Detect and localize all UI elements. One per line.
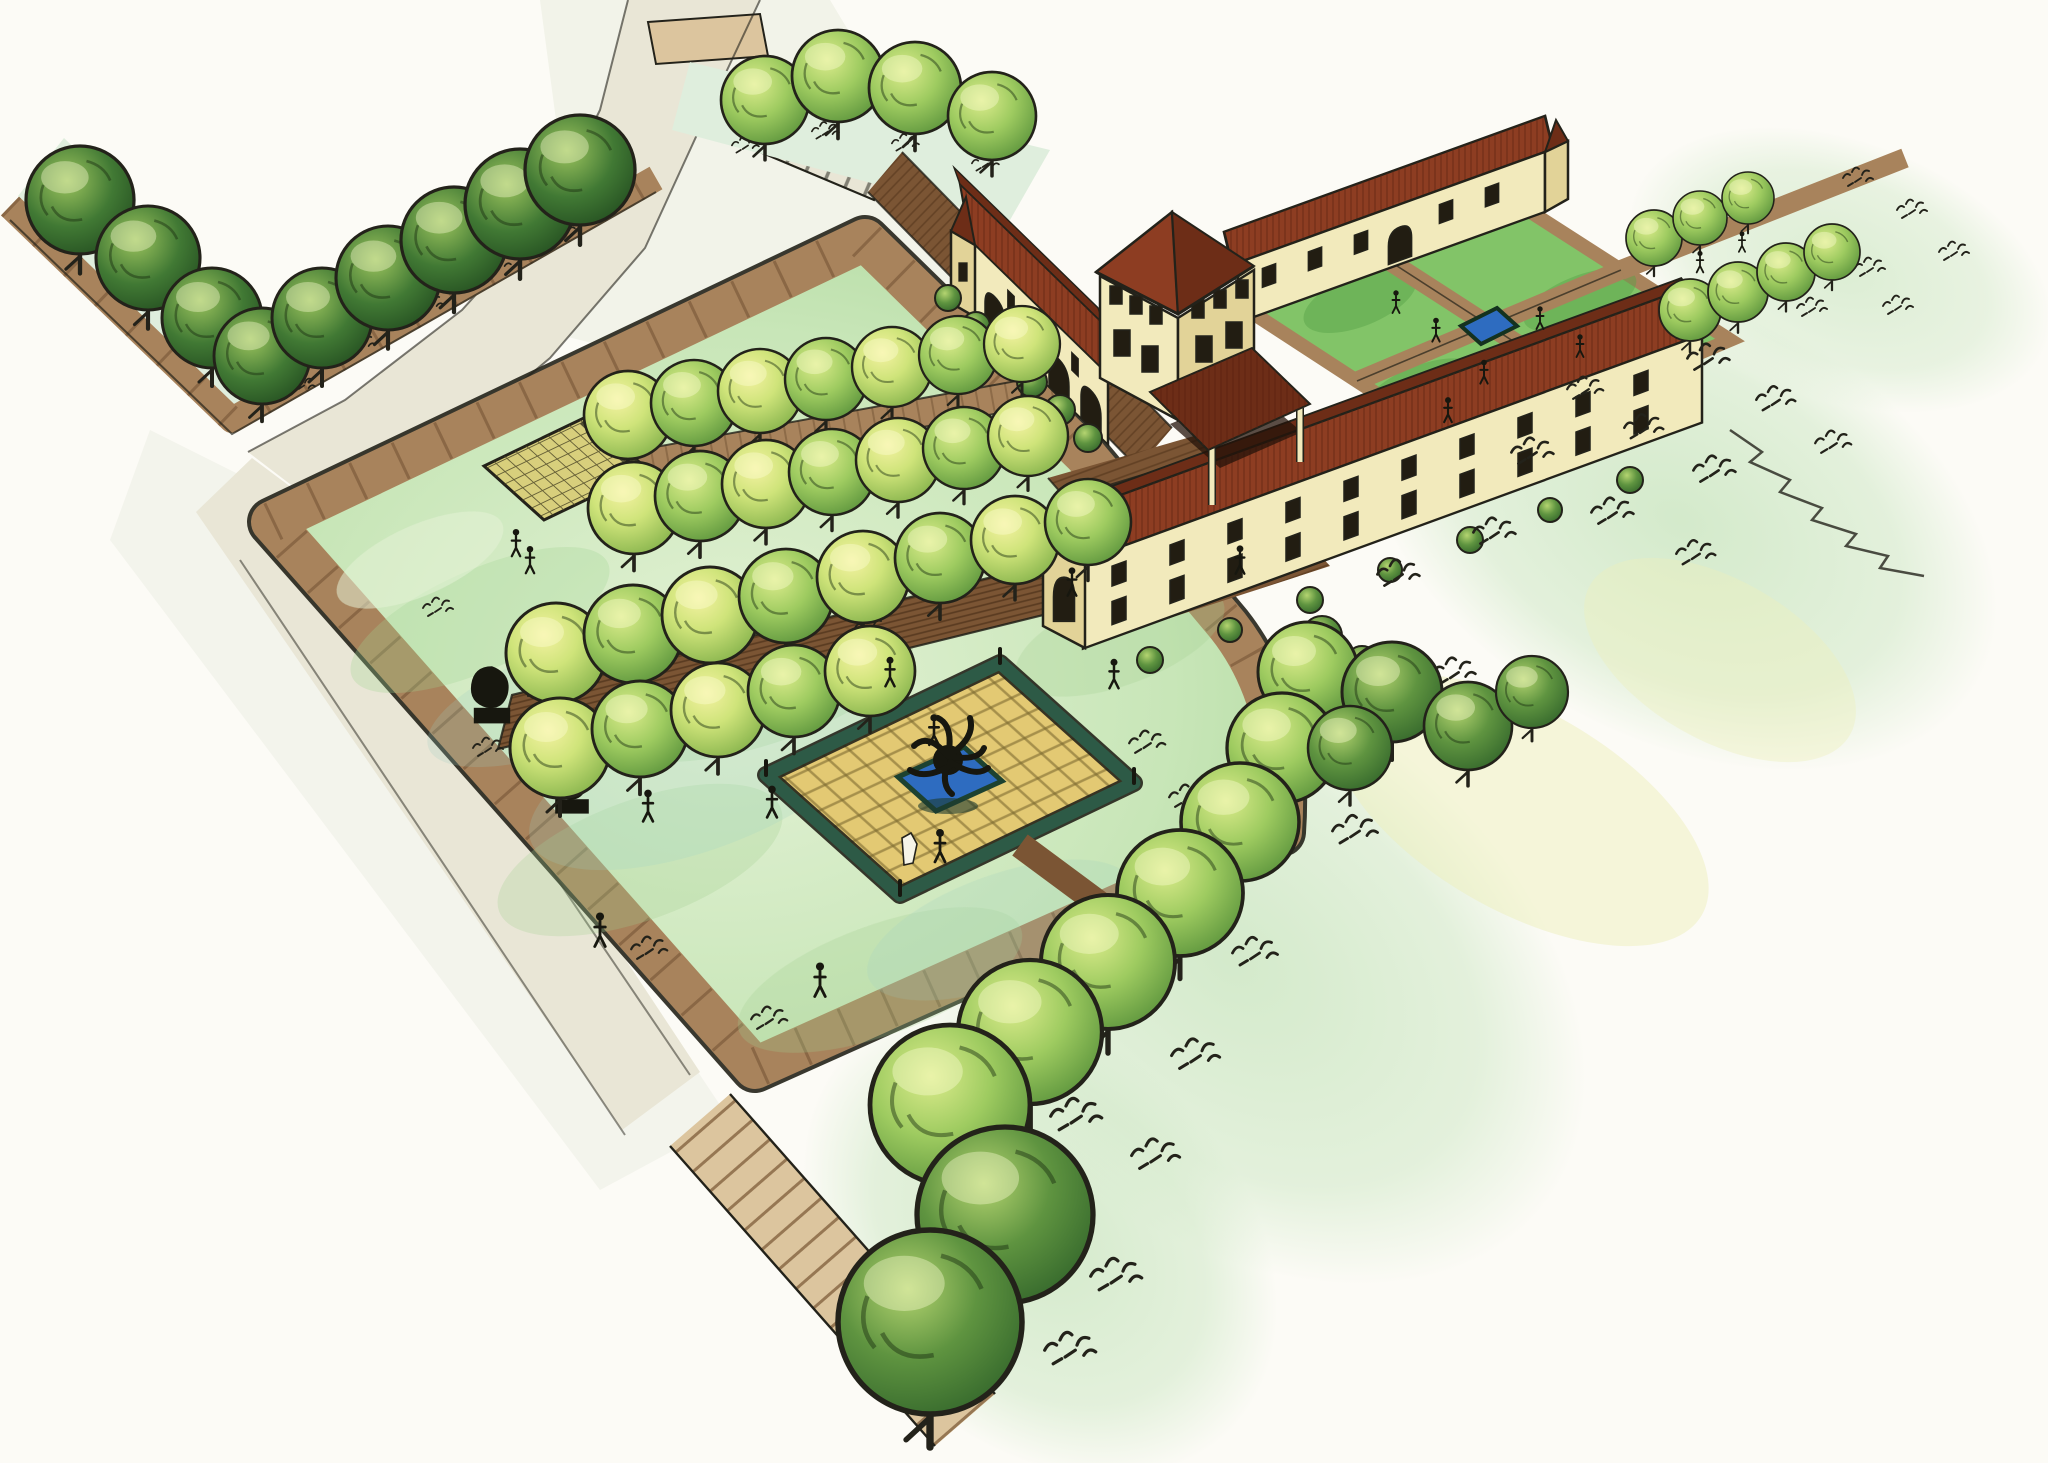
illustration-page: Hand-drawn watercolor aerial perspective… [0,0,2048,1463]
garden-statue [471,666,510,723]
site-rendering: Hand-drawn watercolor aerial perspective… [0,0,2048,1463]
